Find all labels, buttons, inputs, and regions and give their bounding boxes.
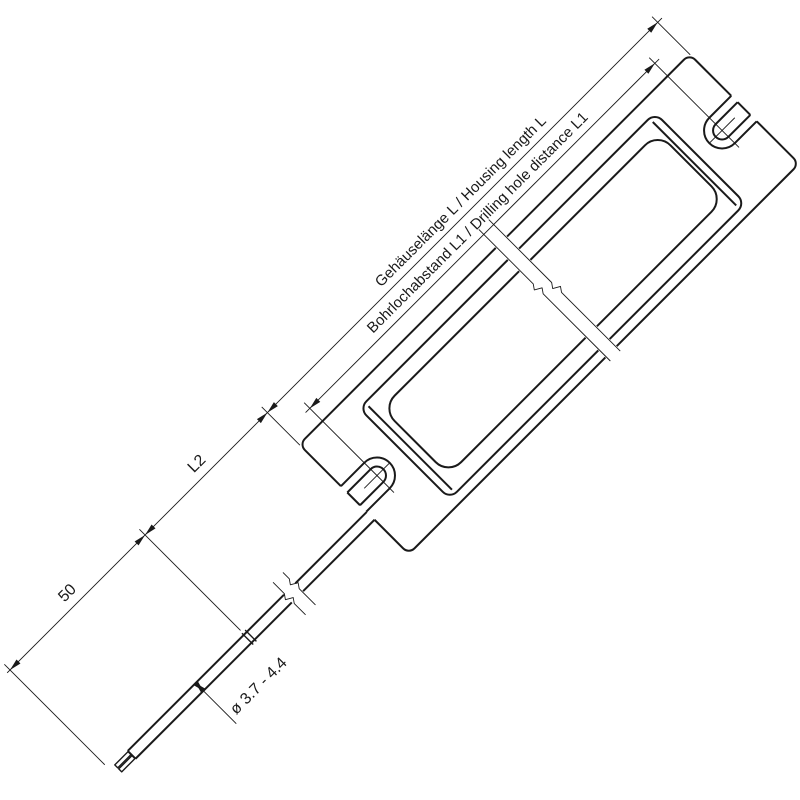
rotated-drawing-group: Gehäuselänge L / Housing length L Bohrlo… xyxy=(0,2,800,800)
label-housing-length: Gehäuselänge L / Housing length L xyxy=(372,113,550,291)
dim-line-l1 xyxy=(306,59,660,413)
technical-drawing-canvas: Gehäuselänge L / Housing length L Bohrlo… xyxy=(0,0,800,800)
housing-base-plate-outline xyxy=(299,54,799,554)
cable-junction-tick-1 xyxy=(242,633,253,644)
cable-break-line-left xyxy=(271,580,308,617)
ext-line-cable-tip xyxy=(4,664,104,764)
cable-break-line-right xyxy=(280,570,317,607)
label-hole-distance: Bohrlochabstand L1 / Drilling hole dista… xyxy=(364,109,592,337)
cover-end-chamfer-top xyxy=(653,122,736,205)
housing-break-line-left xyxy=(476,227,612,363)
label-cable-diameter: ø 3.7 - 4.4 xyxy=(227,654,291,718)
housing-break-line-right xyxy=(486,217,622,353)
cable-junction-tick-2 xyxy=(245,630,256,641)
cover-end-chamfer-bottom xyxy=(369,406,452,489)
label-l2: L2 xyxy=(185,452,210,477)
housing-cover-outline xyxy=(359,113,745,499)
label-50: 50 xyxy=(55,581,80,606)
drawing-svg: Gehäuselänge L / Housing length L Bohrlo… xyxy=(0,0,800,800)
ext-line-jacket-end xyxy=(139,529,240,630)
dim-line-chain xyxy=(7,18,662,673)
